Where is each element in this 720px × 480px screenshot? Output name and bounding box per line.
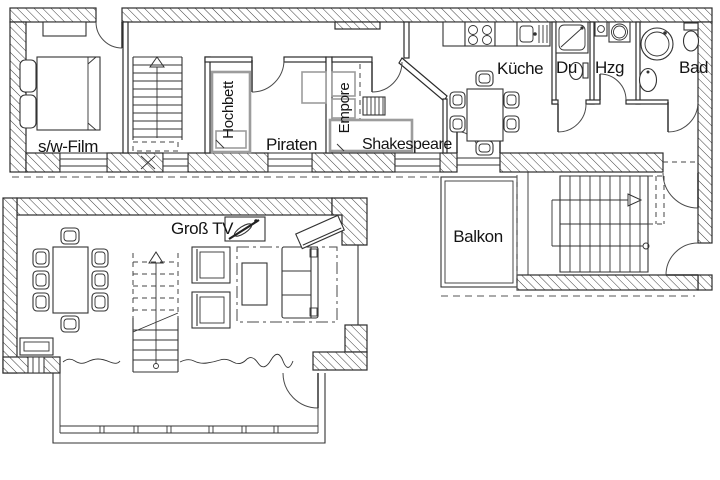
wall	[590, 22, 594, 104]
door-stairwell-bottom	[666, 243, 698, 275]
door-terrace	[283, 373, 318, 408]
wall	[205, 57, 210, 153]
floorplan-drawing: s/w-Film Hochbett Piraten Empore Shakesp…	[0, 0, 720, 480]
wall	[10, 8, 96, 22]
stair-break-line	[133, 313, 178, 332]
shower-icon	[556, 22, 588, 53]
window	[268, 153, 312, 172]
chair-icon	[33, 249, 49, 267]
door-hzg	[600, 74, 626, 100]
chair-icon	[61, 228, 79, 244]
kitchen-table-icon	[467, 89, 503, 141]
pillow-icon	[20, 95, 36, 128]
wardrobe-icon	[43, 22, 86, 36]
door-stairwell-top	[663, 173, 698, 208]
coffee-table-icon	[242, 263, 267, 305]
boiler-icon	[609, 22, 630, 42]
wall	[345, 325, 367, 352]
room-label-du: Du	[556, 58, 577, 77]
wall	[335, 22, 380, 29]
wall	[3, 198, 17, 373]
door-du	[558, 104, 586, 132]
wall	[698, 22, 712, 243]
stair-direction-arrow	[149, 252, 163, 263]
room-label-piraten: Piraten	[266, 135, 317, 154]
chair-icon	[504, 116, 519, 132]
wall	[17, 198, 332, 215]
toilet-icon	[684, 23, 699, 51]
sofa-icon	[282, 247, 318, 318]
kitchen-counter	[443, 22, 550, 46]
stairwell-staircase-icon	[552, 176, 664, 272]
kitchen-sink-icon	[517, 22, 550, 46]
wall	[123, 22, 128, 153]
chair-icon	[92, 293, 108, 311]
wall	[404, 22, 409, 58]
room-label-kueche: Küche	[497, 59, 543, 78]
wall	[517, 275, 698, 290]
chair-icon	[476, 141, 493, 155]
chair-icon	[61, 316, 79, 332]
room-label-shakespeare: Shakespeare	[362, 136, 452, 153]
chair-icon	[92, 249, 108, 267]
window	[28, 357, 44, 373]
wall	[698, 275, 712, 290]
pillow-icon	[20, 60, 36, 92]
cabinet-icon	[302, 72, 326, 103]
door-bad	[668, 102, 698, 132]
chair-icon	[450, 116, 465, 132]
double-bed-icon	[20, 57, 100, 130]
room-label-grosstv: Groß TV	[171, 219, 234, 238]
room-label-bad: Bad	[679, 58, 708, 77]
wall	[284, 57, 326, 62]
wall	[636, 22, 640, 104]
utility-sink-icon	[595, 22, 607, 36]
floorplan-canvas: s/w-Film Hochbett Piraten Empore Shakesp…	[0, 0, 720, 480]
wall	[332, 57, 372, 62]
upper-floor-plan: s/w-Film Hochbett Piraten Empore Shakesp…	[10, 8, 712, 296]
stair-landing	[133, 142, 178, 151]
wall	[500, 153, 663, 172]
door-swfilm	[96, 22, 122, 48]
window	[163, 153, 188, 172]
gallery-ladder-icon	[363, 97, 385, 115]
wall	[205, 57, 252, 62]
door-shakespeare	[372, 62, 402, 92]
room-label-hochbett: Hochbett	[220, 80, 237, 139]
door-piraten	[252, 60, 284, 92]
bathtub-icon	[641, 28, 673, 60]
room-label-empore: Empore	[336, 83, 353, 134]
armchair-icon	[192, 292, 230, 328]
washbasin-icon	[640, 69, 657, 92]
room-label-balkon: Balkon	[453, 227, 503, 246]
wall	[188, 153, 268, 172]
basement-staircase-icon	[133, 252, 178, 372]
wall	[552, 100, 558, 104]
wall	[313, 352, 367, 370]
stair-direction-arrow	[150, 57, 164, 67]
chair-icon	[92, 271, 108, 289]
chair-icon	[450, 92, 465, 108]
wall	[312, 153, 395, 172]
sideboard-icon	[296, 215, 345, 248]
stove-icon	[465, 22, 495, 46]
wall	[440, 153, 457, 172]
door-sill	[457, 158, 500, 165]
staircase-icon	[133, 57, 182, 151]
wall	[122, 8, 712, 22]
window	[395, 153, 440, 172]
diagonal-wall	[399, 58, 447, 101]
chest-icon	[20, 338, 53, 355]
dining-table-icon	[53, 247, 88, 313]
chair-icon	[33, 271, 49, 289]
chair-icon	[33, 293, 49, 311]
chair-icon	[504, 92, 519, 108]
chair-icon	[476, 71, 493, 86]
armchair-icon	[192, 247, 230, 283]
wall	[586, 100, 600, 104]
railing-posts	[100, 426, 278, 433]
wall	[626, 100, 668, 104]
room-label-hzg: Hzg	[595, 58, 624, 77]
lower-floor-plan: Groß TV	[3, 198, 367, 443]
room-label-swfilm: s/w-Film	[38, 137, 98, 156]
